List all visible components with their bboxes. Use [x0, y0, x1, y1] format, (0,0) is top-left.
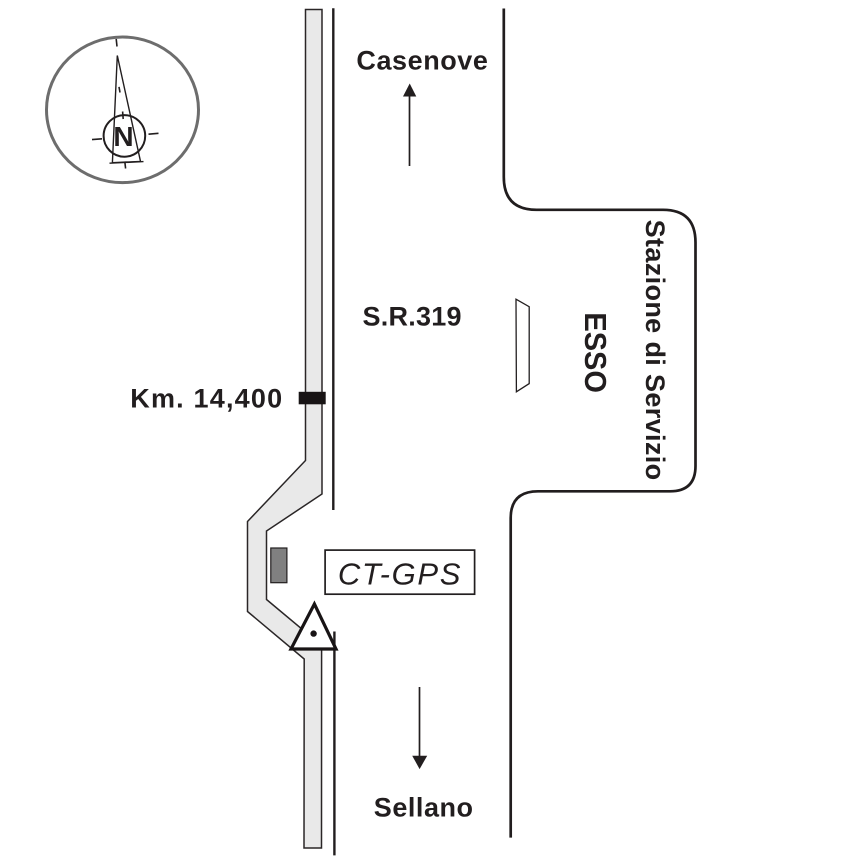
svg-text:S.R.319: S.R.319	[363, 302, 462, 332]
svg-text:N: N	[113, 121, 133, 152]
svg-text:Casenove: Casenove	[356, 46, 488, 76]
svg-text:CT-GPS: CT-GPS	[338, 556, 461, 591]
svg-text:Km. 14,400: Km. 14,400	[130, 384, 282, 414]
svg-text:ESSO: ESSO	[578, 312, 613, 393]
svg-text:Sellano: Sellano	[374, 793, 473, 823]
svg-text:Stazione di Servizio: Stazione di Servizio	[640, 220, 670, 481]
